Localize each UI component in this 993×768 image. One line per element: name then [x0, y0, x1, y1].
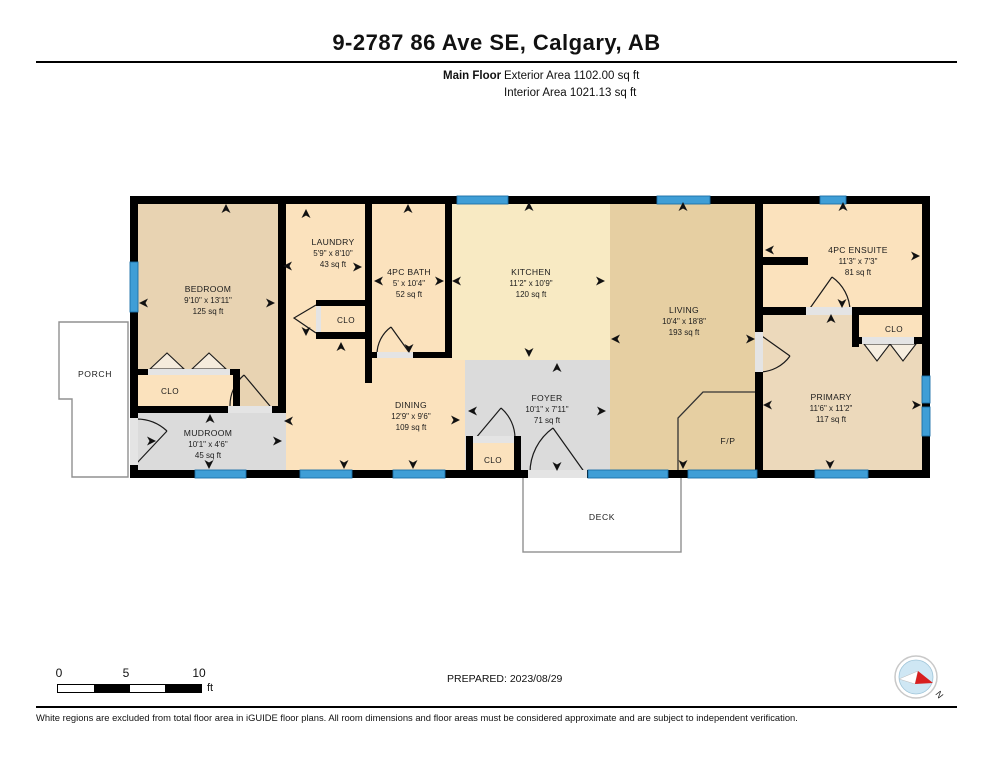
wall-bath-right: [445, 204, 452, 358]
opening-foyer-exterior: [528, 470, 587, 478]
opening-foyer-closet: [473, 436, 514, 443]
label-primary-dims: 11'6" x 11'2": [810, 404, 853, 413]
window-bottom-living-1: [588, 470, 668, 478]
window-top-ensuite: [820, 196, 846, 204]
label-laundry-dims: 5'9" x 8'10": [313, 249, 353, 258]
scale-segment: [94, 685, 130, 692]
scale-label-0: 0: [53, 666, 65, 680]
label-ensuite-area: 81 sq ft: [845, 268, 872, 277]
room-dining-fill: [286, 358, 465, 470]
room-bedroom-closet-fill: [138, 375, 233, 406]
label-bedroom-area: 125 sq ft: [193, 307, 224, 316]
label-closet-laundry: CLO: [337, 316, 355, 325]
compass: N: [888, 650, 950, 710]
opening-laundry-closet: [316, 306, 321, 332]
scale-segment: [165, 685, 201, 692]
label-closet-bedroom: CLO: [161, 387, 179, 396]
opening-bath: [377, 352, 413, 358]
opening-bedroom: [228, 406, 272, 413]
wall-outer-top: [130, 196, 930, 204]
label-dining-area: 109 sq ft: [396, 423, 427, 432]
footer-divider: [36, 706, 957, 708]
compass-north-label: N: [933, 689, 945, 700]
label-bath-area: 52 sq ft: [396, 290, 423, 299]
scale-label-10: 10: [190, 666, 208, 680]
label-laundry-name: LAUNDRY: [311, 237, 354, 247]
label-mudroom-dims: 10'1" x 4'6": [188, 440, 228, 449]
window-right-primary-1: [922, 376, 930, 403]
label-kitchen-area: 120 sq ft: [516, 290, 547, 299]
label-dining-name: DINING: [395, 400, 427, 410]
label-foyer-dims: 10'1" x 7'11": [525, 405, 568, 414]
label-foyer-area: 71 sq ft: [534, 416, 561, 425]
label-porch: PORCH: [78, 369, 112, 379]
label-ensuite-name: 4PC ENSUITE: [828, 245, 888, 255]
label-living-name: LIVING: [669, 305, 699, 315]
scale-segment: [58, 685, 94, 692]
porch-outline: [59, 322, 128, 477]
window-right-primary-2: [922, 407, 930, 436]
label-living-area: 193 sq ft: [669, 328, 700, 337]
scale-unit: ft: [207, 682, 213, 694]
opening-ensuite-door: [806, 307, 852, 315]
label-deck: DECK: [589, 512, 615, 522]
room-foyer-closet-fill: [466, 440, 521, 470]
label-ensuite-dims: 11'3" x 7'3": [839, 257, 878, 266]
wall-laundry-closet-top: [316, 300, 372, 306]
scale-segment: [130, 685, 166, 692]
wall-laundry-closet-bottom: [316, 332, 372, 339]
label-foyer-name: FOYER: [531, 393, 562, 403]
wall-foyer-closet-left: [466, 436, 473, 470]
wall-laundry-bath: [365, 204, 372, 383]
room-living-fill: [610, 204, 759, 470]
scale-bar: [57, 684, 202, 693]
window-left-bedroom: [130, 262, 138, 312]
label-dining-dims: 12'9" x 9'6": [391, 412, 431, 421]
label-laundry-area: 43 sq ft: [320, 260, 347, 269]
label-mudroom-name: MUDROOM: [184, 428, 232, 438]
window-top-living: [657, 196, 710, 204]
label-closet-primary: CLO: [885, 325, 903, 334]
label-living-dims: 10'4" x 18'8": [662, 317, 706, 326]
label-primary-area: 117 sq ft: [816, 415, 847, 424]
label-kitchen-name: KITCHEN: [511, 267, 551, 277]
window-bottom-primary: [815, 470, 868, 478]
label-bath-dims: 5' x 10'4": [393, 279, 425, 288]
label-bedroom-dims: 9'10" x 13'11": [184, 296, 232, 305]
wall-foyer-closet-right: [514, 436, 521, 470]
floorplan-drawing: BEDROOM 9'10" x 13'11" 125 sq ft LAUNDRY…: [0, 0, 993, 768]
disclaimer-text: White regions are excluded from total fl…: [36, 712, 961, 723]
wall-bedroom-right: [278, 204, 286, 413]
floorplan-page: 9-2787 86 Ave SE, Calgary, AB Main Floor…: [0, 0, 993, 768]
window-bottom-dining-1: [300, 470, 352, 478]
wall-bedroom-closet-right: [233, 369, 240, 406]
label-fireplace: F/P: [720, 436, 735, 446]
opening-primary-door: [755, 332, 763, 372]
window-bottom-dining-2: [393, 470, 445, 478]
window-top-kitchen: [457, 196, 508, 204]
opening-primary-closet: [862, 337, 914, 344]
wall-ensuite-stub: [763, 257, 808, 265]
label-closet-foyer: CLO: [484, 456, 502, 465]
label-mudroom-area: 45 sq ft: [195, 451, 222, 460]
prepared-date: PREPARED: 2023/08/29: [447, 673, 562, 685]
room-fills: [138, 204, 922, 470]
label-bedroom-name: BEDROOM: [185, 284, 232, 294]
window-bottom-living-2: [688, 470, 757, 478]
scale-label-5: 5: [120, 666, 132, 680]
label-kitchen-dims: 11'2" x 10'9": [509, 279, 552, 288]
window-bottom-mudroom: [195, 470, 246, 478]
opening-bedroom-closet: [148, 369, 230, 375]
label-bath-name: 4PC BATH: [387, 267, 431, 277]
opening-mudroom-exterior: [130, 418, 138, 465]
label-primary-name: PRIMARY: [810, 392, 851, 402]
